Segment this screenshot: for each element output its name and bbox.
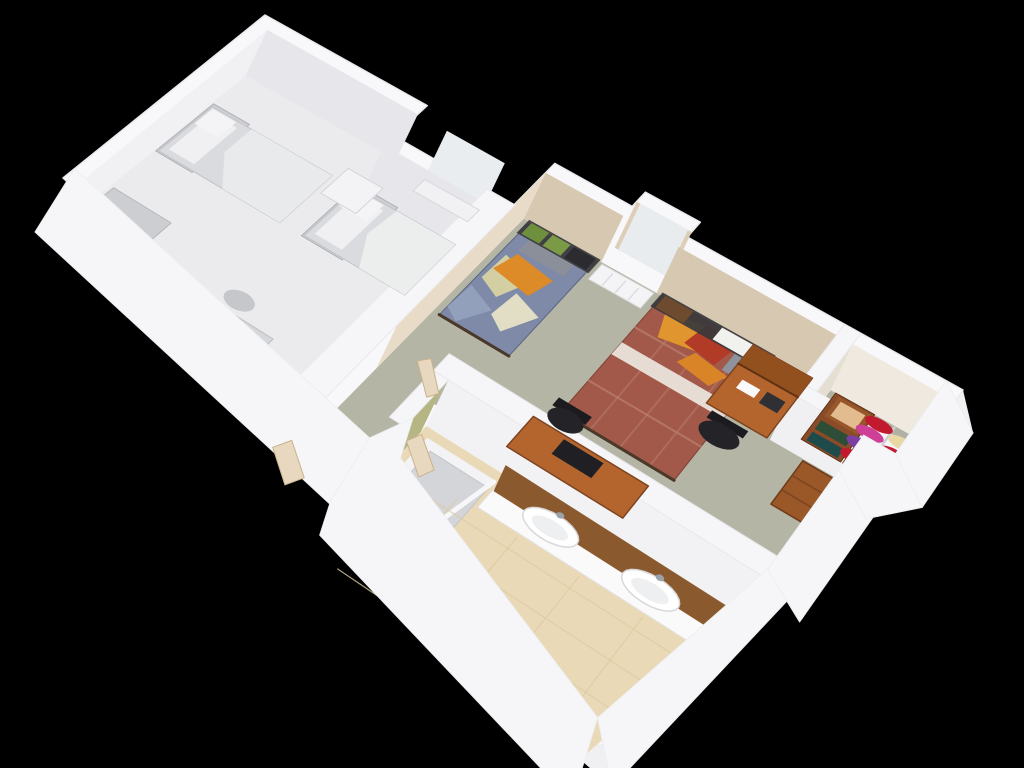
- floor-plan-render: [0, 0, 1024, 768]
- floor-plan-stage: [0, 0, 1024, 768]
